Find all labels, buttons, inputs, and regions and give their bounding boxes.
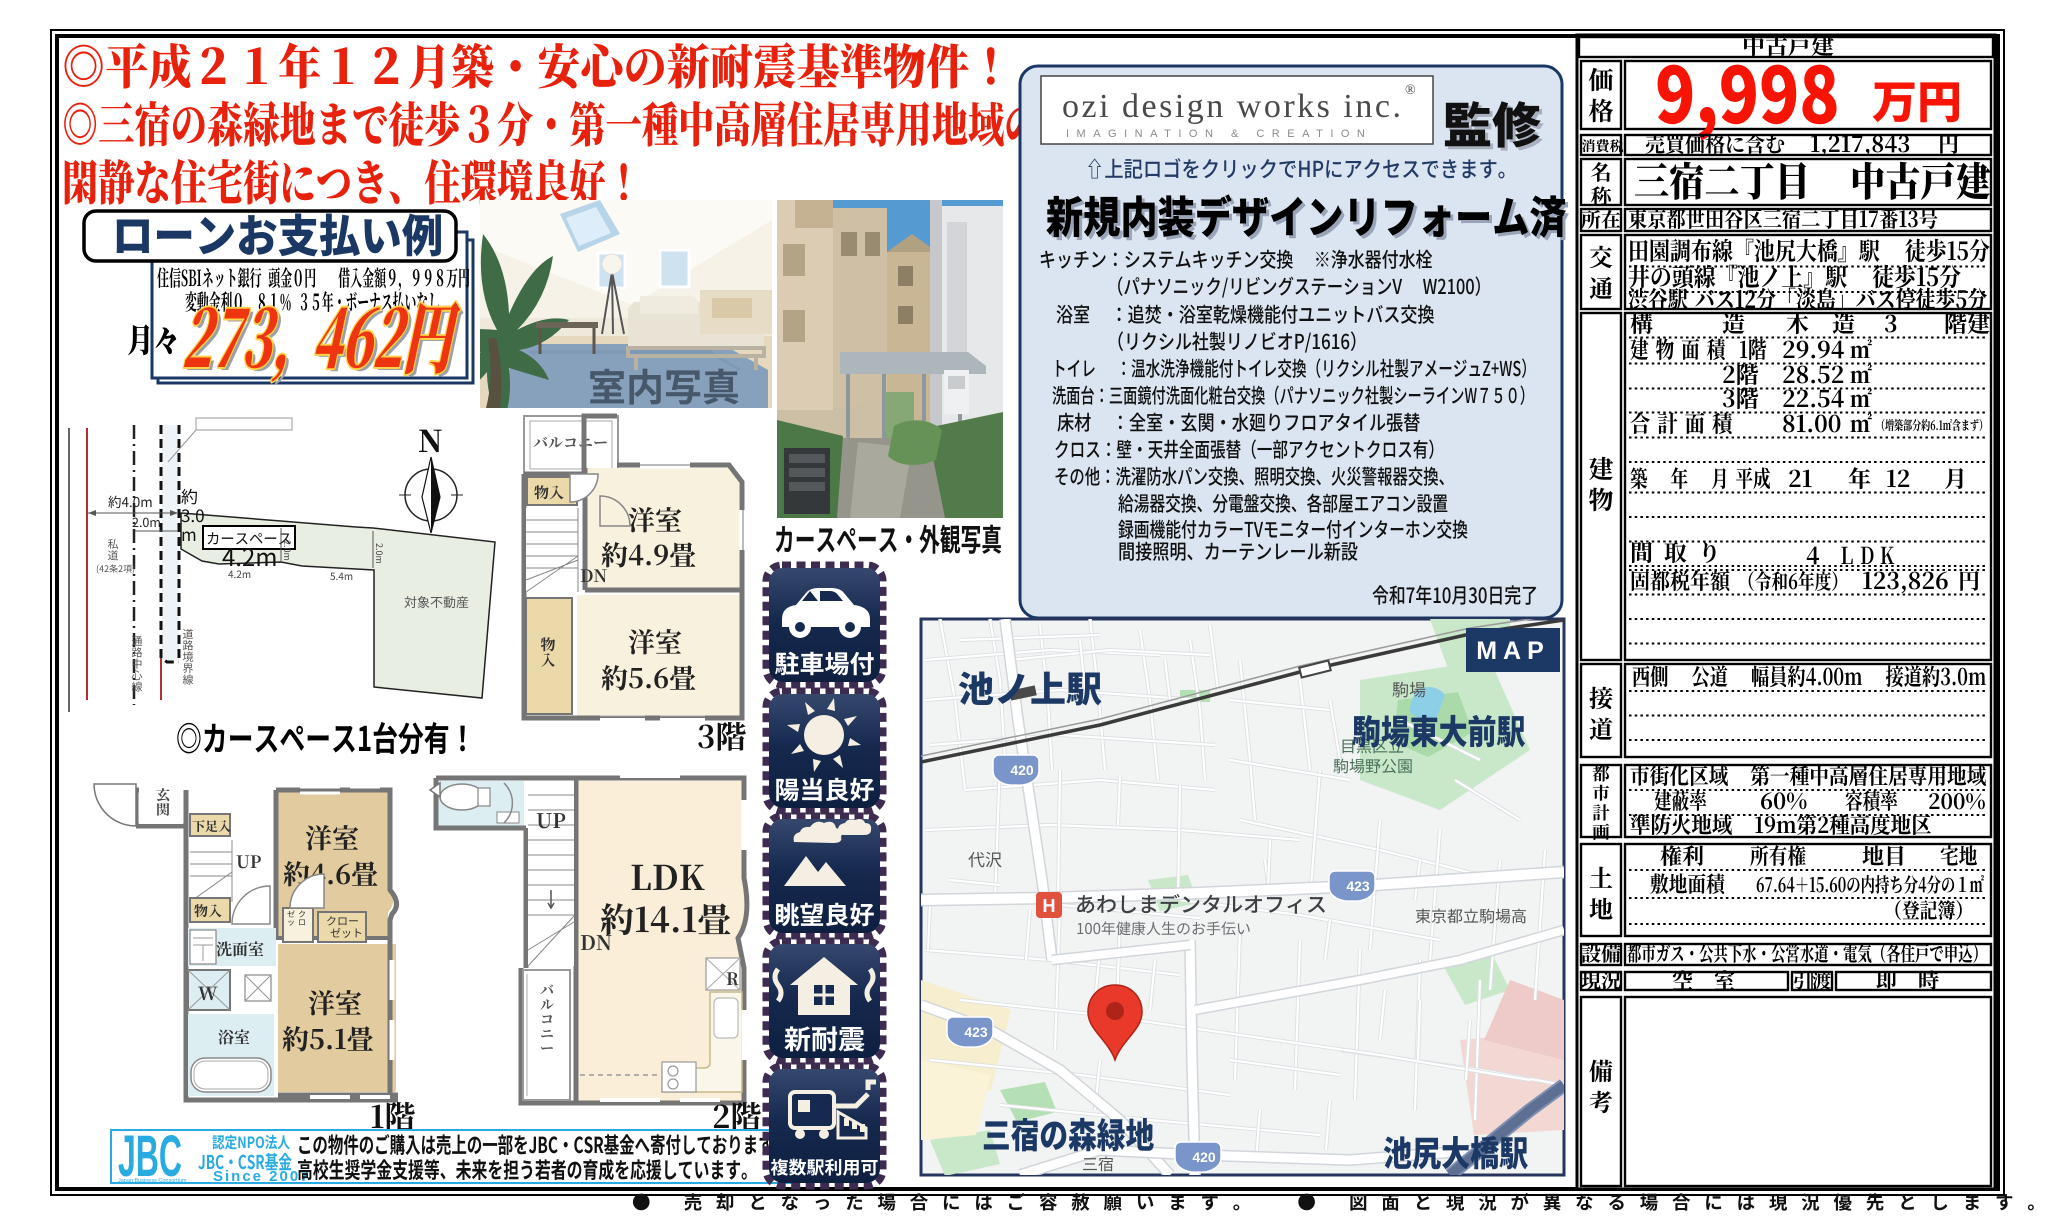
- svg-text:MAP: MAP: [1476, 637, 1550, 665]
- svg-text:420: 420: [1192, 1149, 1216, 1165]
- svg-text:423: 423: [964, 1024, 988, 1040]
- svg-text:Since 2007: Since 2007: [213, 1168, 311, 1185]
- svg-text:H: H: [1043, 896, 1056, 916]
- svg-text:420: 420: [1010, 762, 1034, 778]
- svg-text:®: ®: [1405, 83, 1416, 98]
- svg-text:IMAGINATION & CREATION: IMAGINATION & CREATION: [1066, 128, 1372, 140]
- svg-text:ozi design works inc.: ozi design works inc.: [1062, 88, 1403, 125]
- svg-text:423: 423: [1346, 878, 1370, 894]
- svg-text:Japan Business Consortium: Japan Business Consortium: [118, 1178, 187, 1184]
